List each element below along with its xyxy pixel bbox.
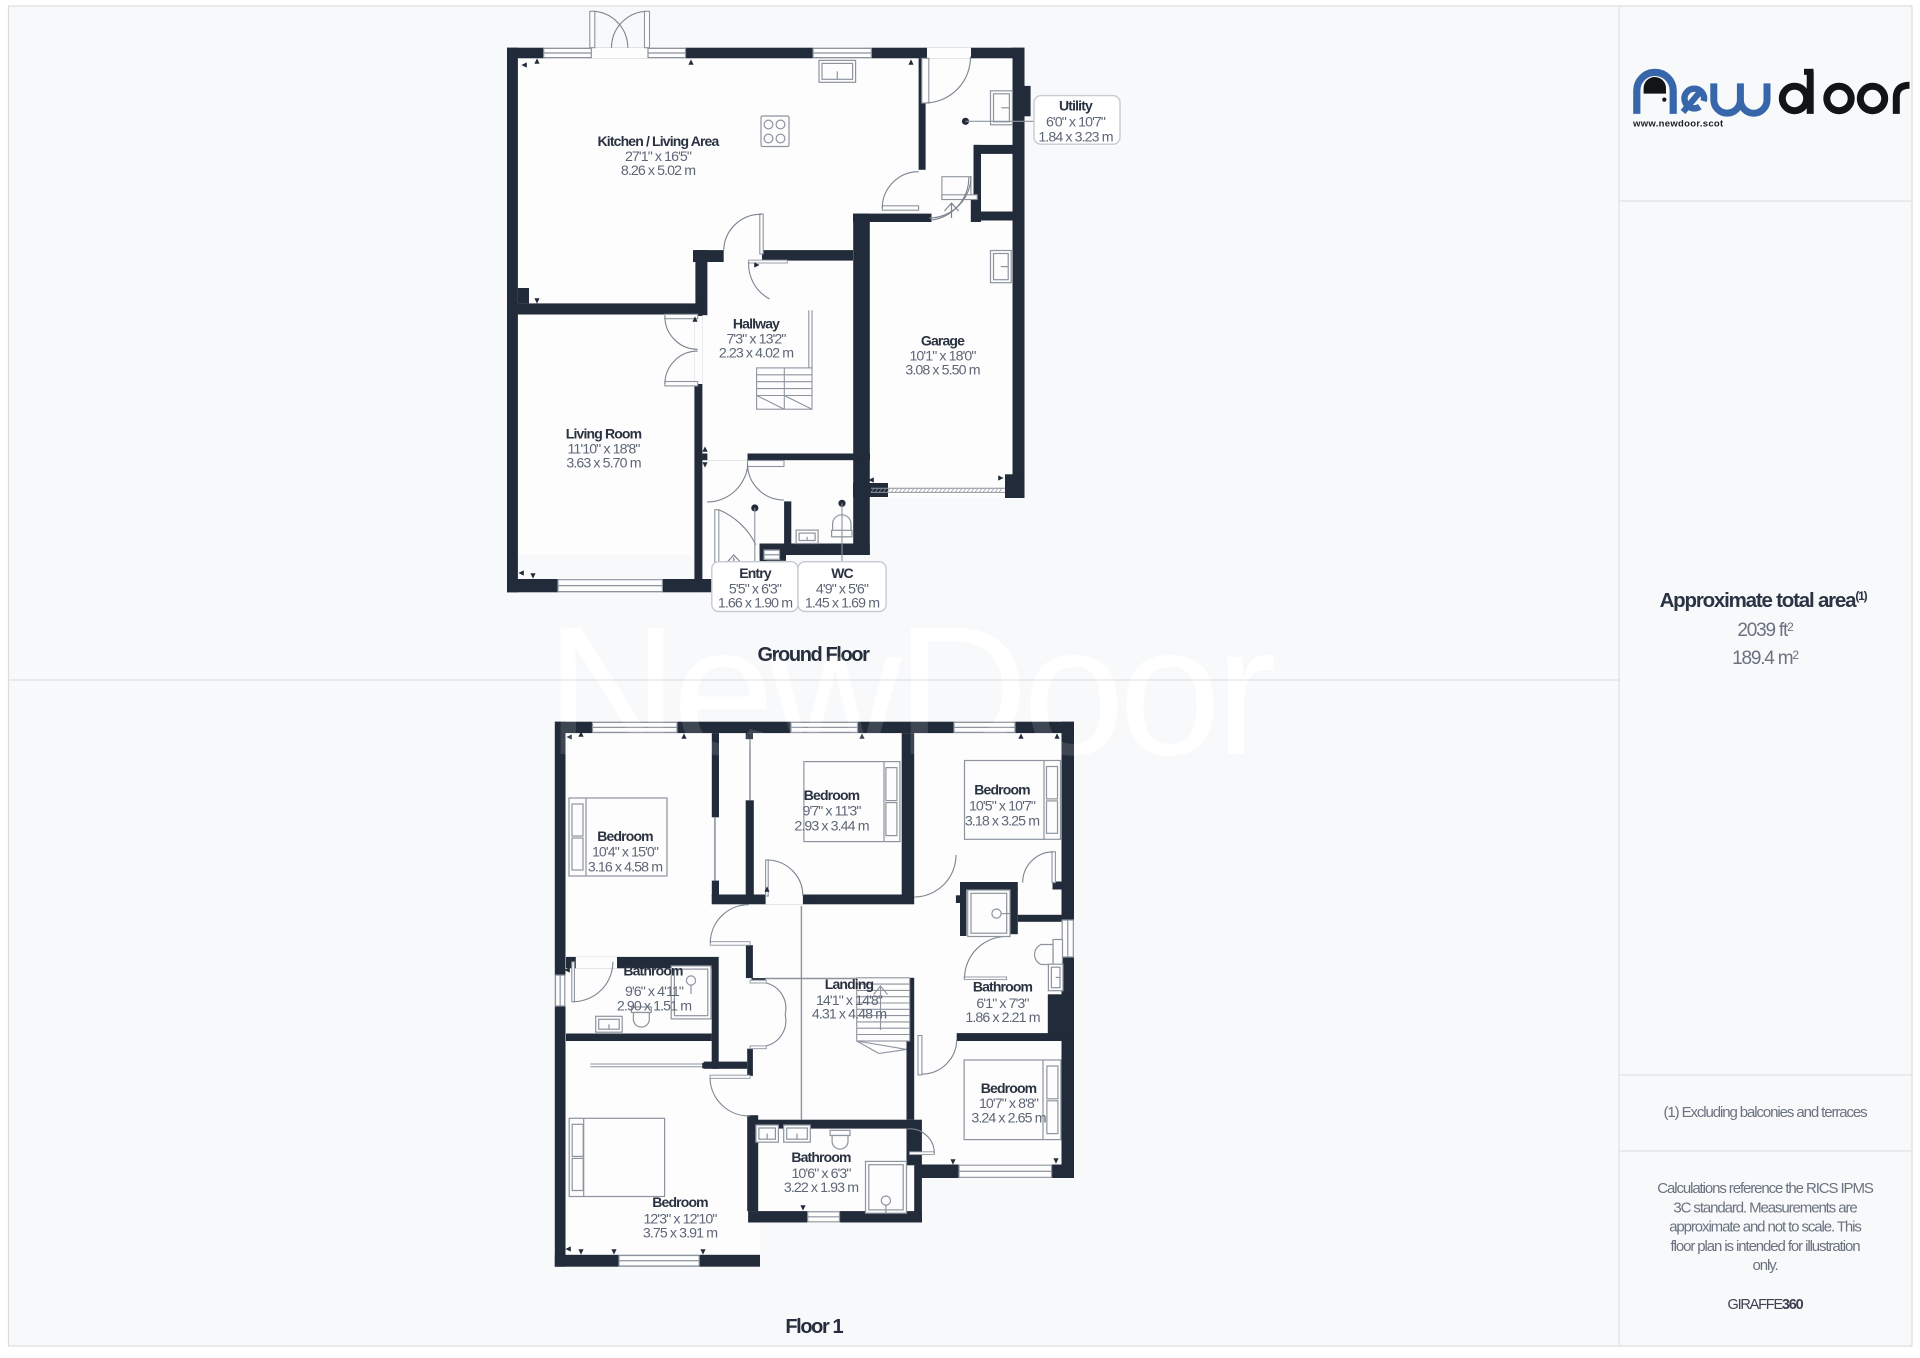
svg-text:GIRAFFE360: GIRAFFE360 bbox=[1727, 1297, 1803, 1313]
svg-text:Bedroom: Bedroom bbox=[652, 1194, 708, 1210]
svg-text:Bedroom: Bedroom bbox=[981, 1080, 1037, 1096]
svg-text:only.: only. bbox=[1752, 1257, 1777, 1274]
svg-text:Entry: Entry bbox=[739, 565, 772, 581]
svg-text:1.86 x 2.21 m: 1.86 x 2.21 m bbox=[965, 1010, 1039, 1026]
svg-text:Kitchen / Living Area: Kitchen / Living Area bbox=[598, 133, 720, 149]
svg-text:3.22 x 1.93 m: 3.22 x 1.93 m bbox=[784, 1180, 858, 1196]
svg-text:Bathroom: Bathroom bbox=[623, 963, 683, 979]
svg-text:Floor 1: Floor 1 bbox=[785, 1316, 843, 1338]
svg-text:Landing: Landing bbox=[825, 976, 874, 992]
svg-text:6'0" x 10'7": 6'0" x 10'7" bbox=[1046, 115, 1106, 131]
svg-text:3.75 x 3.91 m: 3.75 x 3.91 m bbox=[643, 1226, 717, 1242]
svg-text:Hallway: Hallway bbox=[733, 316, 780, 332]
svg-text:3.24 x 2.65 m: 3.24 x 2.65 m bbox=[971, 1111, 1045, 1127]
svg-text:3.63 x 5.70 m: 3.63 x 5.70 m bbox=[566, 456, 640, 472]
svg-text:2.93 x 3.44 m: 2.93 x 3.44 m bbox=[794, 819, 868, 835]
svg-text:WC: WC bbox=[831, 565, 853, 581]
svg-text:www.newdoor.scot: www.newdoor.scot bbox=[1632, 119, 1724, 130]
svg-text:2.23 x 4.02 m: 2.23 x 4.02 m bbox=[719, 346, 793, 362]
svg-text:Bathroom: Bathroom bbox=[791, 1149, 851, 1165]
svg-text:8.26 x 5.02 m: 8.26 x 5.02 m bbox=[621, 163, 695, 179]
svg-text:10'5" x 10'7": 10'5" x 10'7" bbox=[969, 799, 1036, 815]
svg-text:NewDoor: NewDoor bbox=[546, 587, 1275, 793]
svg-text:10'4" x 15'0": 10'4" x 15'0" bbox=[592, 845, 659, 861]
svg-text:3.16 x 4.58 m: 3.16 x 4.58 m bbox=[588, 860, 662, 876]
svg-text:Utility: Utility bbox=[1059, 98, 1093, 114]
svg-text:approximate and not to scale.: approximate and not to scale. This bbox=[1669, 1219, 1861, 1236]
svg-text:Living Room: Living Room bbox=[566, 426, 642, 442]
svg-text:9'7" x 11'3": 9'7" x 11'3" bbox=[802, 804, 861, 820]
svg-text:Garage: Garage bbox=[921, 333, 965, 349]
svg-text:2.90 x 1.51 m: 2.90 x 1.51 m bbox=[617, 999, 691, 1015]
svg-text:Bedroom: Bedroom bbox=[597, 828, 653, 844]
svg-text:Calculations reference the RIC: Calculations reference the RICS IPMS bbox=[1657, 1180, 1874, 1197]
svg-text:2039 ft2: 2039 ft2 bbox=[1737, 620, 1794, 641]
svg-text:3C standard. Measurements are: 3C standard. Measurements are bbox=[1673, 1199, 1857, 1216]
svg-text:189.4 m2: 189.4 m2 bbox=[1732, 648, 1799, 669]
svg-text:floor plan is intended for ill: floor plan is intended for illustration bbox=[1671, 1238, 1861, 1255]
svg-text:(1) Excluding balconies and te: (1) Excluding balconies and terraces bbox=[1663, 1104, 1867, 1121]
svg-text:Approximate total area(1): Approximate total area(1) bbox=[1660, 589, 1868, 612]
svg-text:3.08 x 5.50 m: 3.08 x 5.50 m bbox=[905, 363, 979, 379]
svg-text:1.84 x 3.23 m: 1.84 x 3.23 m bbox=[1038, 130, 1112, 146]
svg-text:4.31 x 4.48 m: 4.31 x 4.48 m bbox=[812, 1007, 886, 1023]
svg-text:3.18 x 3.25 m: 3.18 x 3.25 m bbox=[965, 814, 1039, 830]
svg-text:Bathroom: Bathroom bbox=[973, 979, 1033, 995]
